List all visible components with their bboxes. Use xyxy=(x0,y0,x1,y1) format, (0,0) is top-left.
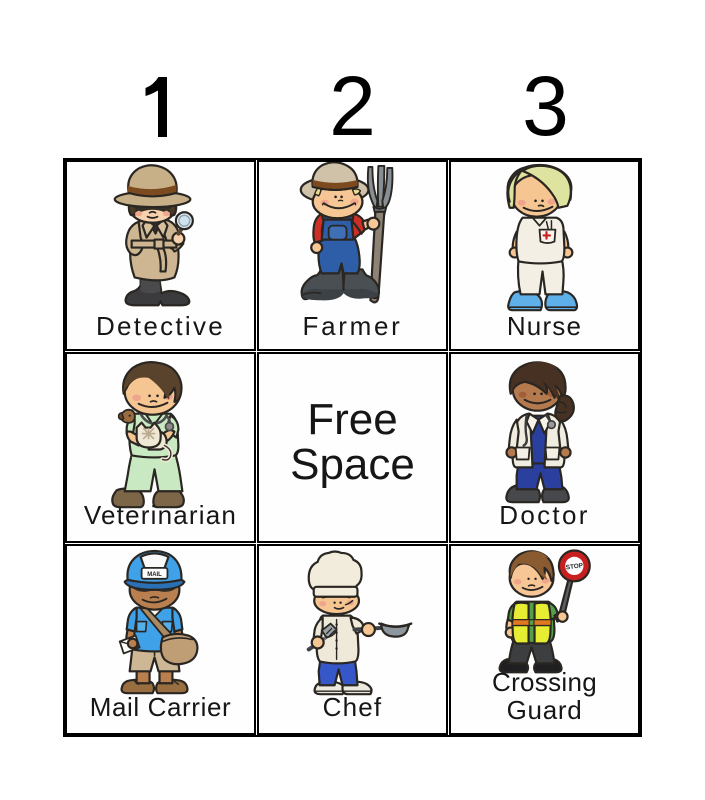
svg-text:MAIL: MAIL xyxy=(147,572,162,578)
